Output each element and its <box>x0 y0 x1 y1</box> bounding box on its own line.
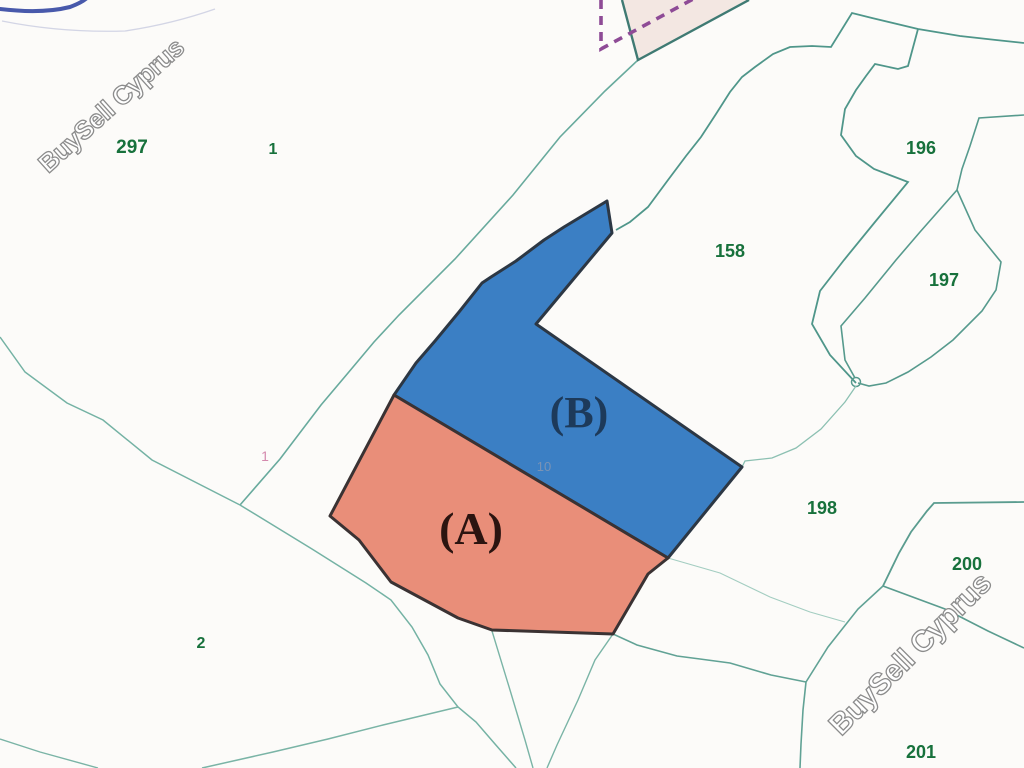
svg-text:(B): (B) <box>550 388 609 437</box>
svg-text:1: 1 <box>261 448 269 464</box>
svg-text:2: 2 <box>197 635 206 652</box>
svg-text:201: 201 <box>906 742 936 762</box>
svg-text:158: 158 <box>715 241 745 261</box>
svg-text:197: 197 <box>929 270 959 290</box>
svg-text:(A): (A) <box>439 503 503 554</box>
svg-text:1: 1 <box>269 141 278 158</box>
svg-text:196: 196 <box>906 138 936 158</box>
svg-text:10: 10 <box>537 459 551 474</box>
svg-text:198: 198 <box>807 498 837 518</box>
svg-text:297: 297 <box>116 137 148 158</box>
